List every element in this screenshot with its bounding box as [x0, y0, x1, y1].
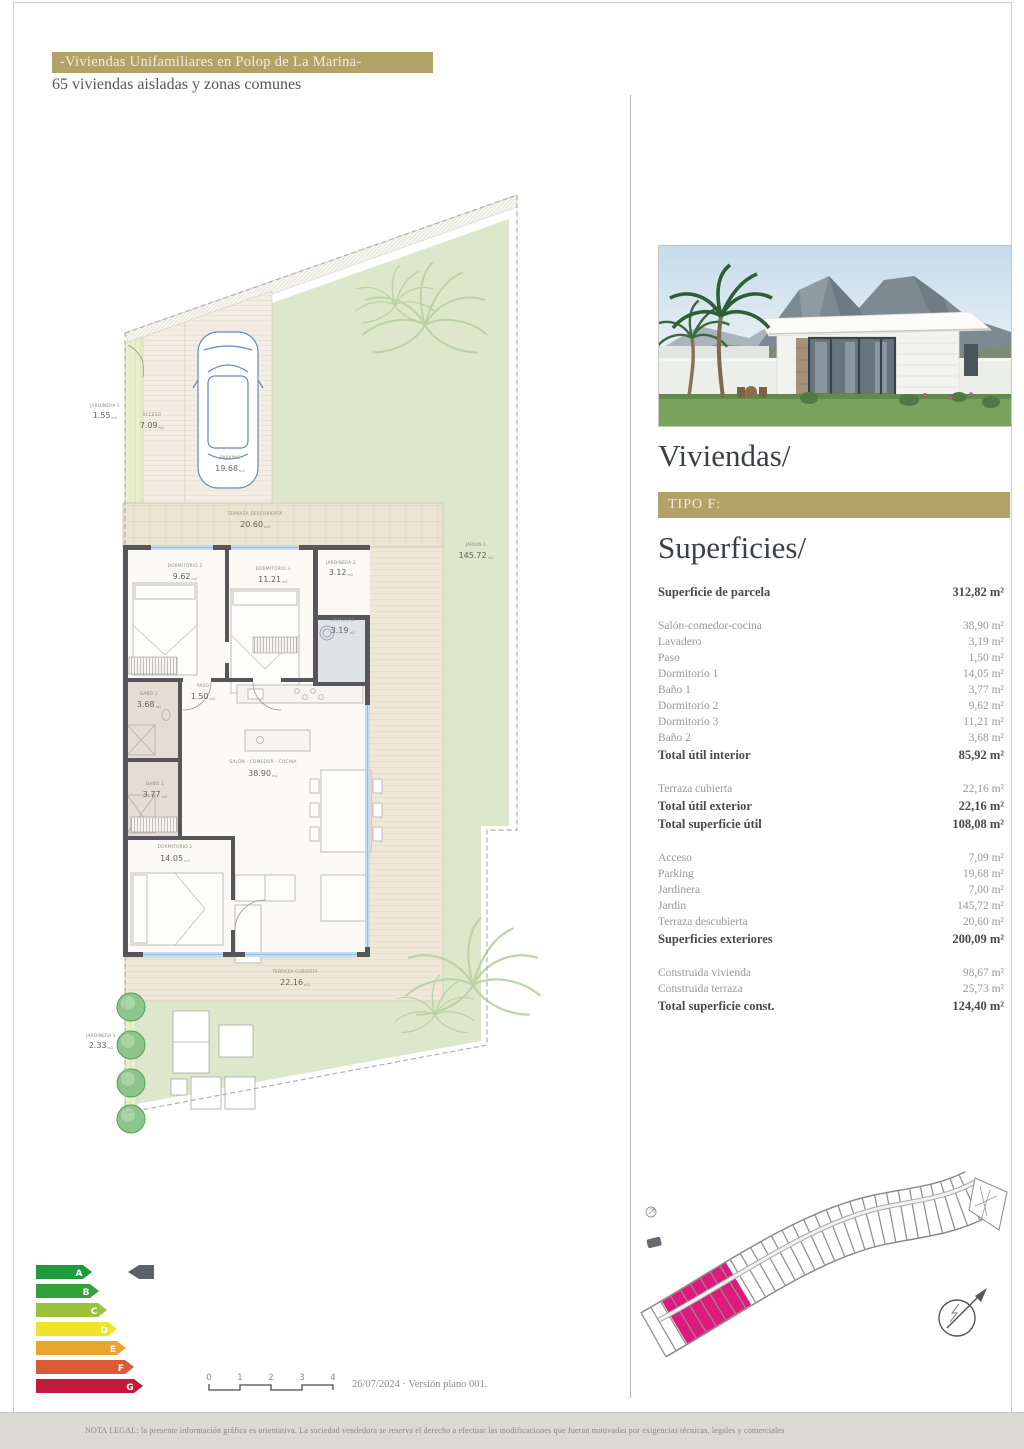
scale-bar: 0 1 2 3 4 [203, 1371, 353, 1395]
legal-note: NOTA LEGAL: la presente información gráf… [85, 1426, 785, 1435]
svg-text:E: E [110, 1345, 116, 1355]
photo-house [759, 312, 991, 397]
surface-row-value: 3,77 m² [969, 682, 1004, 698]
surface-row-value: 22,16 m² [963, 781, 1004, 797]
surface-row-label: Dormitorio 3 [658, 714, 718, 730]
section-title-superficies: Superficies/ [658, 530, 806, 566]
surface-row-value: 85,92 m² [959, 746, 1004, 764]
surface-row: Terraza descubierta20,60 m² [658, 914, 1004, 930]
surface-row-label: Baño 1 [658, 682, 691, 698]
column-divider [630, 95, 631, 1398]
surface-row: Construida terraza25,73 m² [658, 981, 1004, 997]
header-bar: -Viviendas Unifamiliares en Polop de La … [52, 52, 433, 73]
surface-row-label: Total útil exterior [658, 797, 752, 815]
surface-row-label: Paso [658, 650, 680, 666]
svg-text:3: 3 [299, 1373, 304, 1383]
svg-text:B: B [83, 1288, 90, 1298]
svg-text:DORMITORIO 1: DORMITORIO 1 [158, 844, 193, 850]
brochure-page: -Viviendas Unifamiliares en Polop de La … [0, 0, 1024, 1449]
surface-row-label: Dormitorio 2 [658, 698, 718, 714]
svg-text:TERRAZA CUBIERTA: TERRAZA CUBIERTA [271, 969, 318, 975]
surface-row-label: Acceso [658, 850, 692, 866]
svg-text:PARKING: PARKING [220, 455, 240, 461]
header-title: -Viviendas Unifamiliares en Polop de La … [60, 54, 362, 70]
surface-table: Superficie de parcela312,82 m²Salón-come… [658, 583, 1004, 1032]
surface-row-value: 11,21 m² [963, 714, 1004, 730]
photo-furniture [737, 386, 767, 398]
svg-text:DORMITORIO 3: DORMITORIO 3 [256, 566, 291, 572]
surface-row-label: Parking [658, 866, 694, 882]
svg-text:PASO: PASO [197, 683, 210, 689]
surface-row: Acceso7,09 m² [658, 850, 1004, 866]
svg-text:2: 2 [268, 1373, 273, 1383]
surface-row-value: 312,82 m² [952, 583, 1004, 601]
surface-row-label: Terraza descubierta [658, 914, 748, 930]
surface-row: Superficies exteriores200,09 m² [658, 930, 1004, 948]
surface-row-value: 25,73 m² [963, 981, 1004, 997]
svg-text:JARDINERA 2: JARDINERA 2 [325, 560, 356, 566]
svg-text:BAÑO 2: BAÑO 2 [140, 690, 158, 697]
surface-row-label: Total superficie const. [658, 997, 775, 1015]
surface-row-label: Terraza cubierta [658, 781, 732, 797]
surface-row-value: 7,00 m² [969, 882, 1004, 898]
surface-row: Jardinera7,00 m² [658, 882, 1004, 898]
section-title-viviendas: Viviendas/ [658, 438, 790, 474]
surface-row: Jardin145,72 m² [658, 898, 1004, 914]
site-plan-mini-icons [646, 1207, 662, 1249]
floor-plan: JARDINERA 1 1.55m2 ACCESO 7.09m2 PARKING… [85, 185, 555, 1140]
energy-arrows: A B C D E F G [36, 1265, 143, 1393]
surface-row-label: Total superficie útil [658, 815, 762, 833]
surface-row-label: Total útil interior [658, 746, 751, 764]
surface-row-value: 38,90 m² [963, 618, 1004, 634]
terraza-descubierta-area [123, 503, 443, 547]
surface-row: Paso1,50 m² [658, 650, 1004, 666]
house-photo [658, 245, 1012, 427]
surface-row-value: 108,08 m² [952, 815, 1004, 833]
svg-text:JARDINERA 3: JARDINERA 3 [85, 1033, 116, 1039]
surface-row-label: Dormitorio 1 [658, 666, 718, 682]
svg-text:JARDINERA 1: JARDINERA 1 [89, 403, 120, 409]
surface-row: Total útil exterior22,16 m² [658, 797, 1004, 815]
version-note: 26/07/2024 · Versión plano 001. [352, 1379, 487, 1390]
surface-row-label: Construida vivienda [658, 965, 751, 981]
type-label: TIPO F: [668, 497, 721, 512]
header-subtitle: 65 viviendas aisladas y zonas comunes [52, 76, 301, 94]
type-label-bar: TIPO F: [658, 492, 1010, 518]
svg-text:TERRAZA DESCUBIERTA: TERRAZA DESCUBIERTA [227, 511, 283, 517]
surface-row-label: Jardin [658, 898, 686, 914]
surface-row: Construida vivienda98,67 m² [658, 965, 1004, 981]
surface-row: Baño 13,77 m² [658, 682, 1004, 698]
surface-row-value: 124,40 m² [952, 997, 1004, 1015]
surface-row: Total superficie útil108,08 m² [658, 815, 1004, 833]
svg-text:C: C [91, 1307, 98, 1317]
surface-row-value: 145,72 m² [957, 898, 1004, 914]
svg-text:DORMITORIO 2: DORMITORIO 2 [168, 563, 203, 569]
surface-row: Dormitorio 29,62 m² [658, 698, 1004, 714]
energy-indicator-arrow-icon [128, 1265, 154, 1279]
surface-row-value: 7,09 m² [969, 850, 1004, 866]
surface-row: Lavadero3,19 m² [658, 634, 1004, 650]
surface-row-label: Jardinera [658, 882, 700, 898]
svg-text:0: 0 [206, 1373, 211, 1383]
surface-row-label: Baño 2 [658, 730, 691, 746]
surface-row: Dormitorio 114,05 m² [658, 666, 1004, 682]
floor-plan-svg: JARDINERA 1 1.55m2 ACCESO 7.09m2 PARKING… [85, 185, 555, 1140]
surface-row-value: 22,16 m² [959, 797, 1004, 815]
surface-row-value: 20,60 m² [963, 914, 1004, 930]
surface-row-label: Salón-comedor-cocina [658, 618, 762, 634]
jardinera-1-strip [125, 337, 143, 503]
surface-row-value: 3,68 m² [969, 730, 1004, 746]
svg-text:A: A [76, 1269, 83, 1279]
surface-row-value: 98,67 m² [963, 965, 1004, 981]
surface-row-value: 1,50 m² [969, 650, 1004, 666]
surface-row-value: 200,09 m² [952, 930, 1004, 948]
surface-row-label: Lavadero [658, 634, 701, 650]
svg-text:LAVADERO: LAVADERO [331, 617, 356, 623]
house-photo-svg [659, 246, 1011, 426]
svg-text:F: F [118, 1364, 124, 1374]
surface-row: Total útil interior85,92 m² [658, 746, 1004, 764]
svg-text:G: G [126, 1383, 133, 1393]
surface-row: Dormitorio 311,21 m² [658, 714, 1004, 730]
legal-strip: NOTA LEGAL: la presente información gráf… [0, 1412, 1024, 1449]
surface-row-value: 9,62 m² [969, 698, 1004, 714]
svg-text:1: 1 [237, 1373, 242, 1383]
surface-row: Total superficie const.124,40 m² [658, 997, 1004, 1015]
surface-row: Parking19,68 m² [658, 866, 1004, 882]
svg-text:BAÑO 1: BAÑO 1 [146, 780, 164, 787]
svg-text:4: 4 [330, 1373, 335, 1383]
svg-text:2.33m2: 2.33m2 [89, 1041, 114, 1050]
surface-row-label: Superficies exteriores [658, 930, 773, 948]
svg-text:SALÓN - COMEDOR - COCINA: SALÓN - COMEDOR - COCINA [229, 758, 296, 765]
surface-row-label: Superficie de parcela [658, 583, 770, 601]
surface-row: Baño 23,68 m² [658, 730, 1004, 746]
surface-row: Terraza cubierta22,16 m² [658, 781, 1004, 797]
svg-text:D: D [100, 1326, 107, 1336]
site-plan [635, 1150, 1015, 1365]
compass-icon [939, 1288, 987, 1336]
surface-row-value: 19,68 m² [963, 866, 1004, 882]
energy-rating-chart: A B C D E F G [36, 1265, 206, 1400]
surface-row-label: Construida terraza [658, 981, 743, 997]
svg-text:ACCESO: ACCESO [143, 412, 162, 418]
surface-row: Salón-comedor-cocina38,90 m² [658, 618, 1004, 634]
surface-row-value: 3,19 m² [969, 634, 1004, 650]
surface-row: Superficie de parcela312,82 m² [658, 583, 1004, 601]
surface-row-value: 14,05 m² [963, 666, 1004, 682]
svg-text:1.55m2: 1.55m2 [93, 411, 118, 420]
svg-text:JARDIN 1: JARDIN 1 [465, 542, 487, 548]
